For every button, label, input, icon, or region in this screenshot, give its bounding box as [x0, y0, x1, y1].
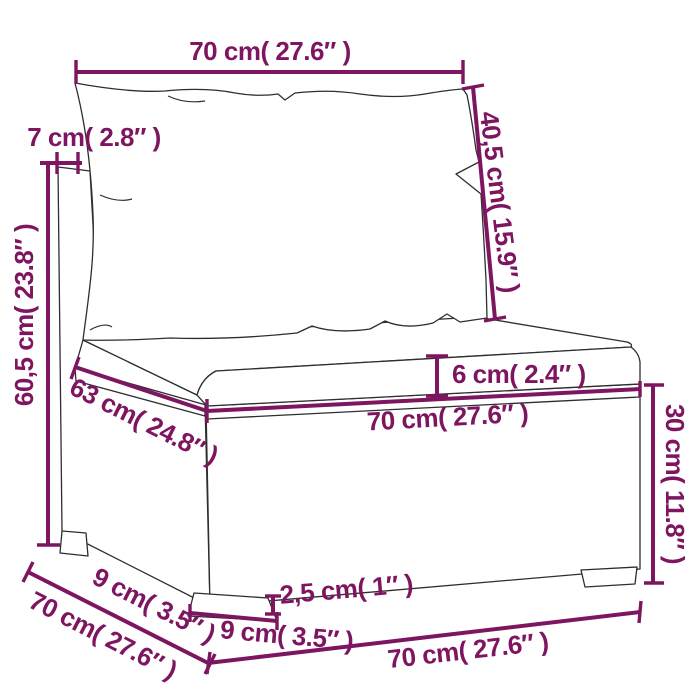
foot-left: [60, 531, 88, 556]
dim-top-width-label: 70 cm( 27.6″ ): [189, 36, 351, 66]
dim-total-height: 60,5 cm( 23.8″ ): [9, 163, 60, 545]
dim-total-height-label: 60,5 cm( 23.8″ ): [9, 224, 39, 406]
sofa-artwork: [58, 83, 640, 621]
dim-back-thickness-label: 7 cm( 2.8″ ): [27, 122, 161, 152]
dim-base-height-label: 30 cm( 11.8″ ): [660, 404, 690, 564]
foot-right: [581, 567, 637, 587]
dim-cushion-thickness-label: 6 cm( 2.4″ ): [452, 359, 586, 389]
sofa-dimension-drawing: 70 cm( 27.6″ ) 7 cm( 2.8″ ) 60,5 cm( 23.…: [0, 0, 700, 700]
dimension-diagram: 70 cm( 27.6″ ) 7 cm( 2.8″ ) 60,5 cm( 23.…: [0, 0, 700, 700]
dim-top-width: 70 cm( 27.6″ ): [76, 36, 463, 84]
dim-base-height: 30 cm( 11.8″ ): [644, 385, 690, 583]
